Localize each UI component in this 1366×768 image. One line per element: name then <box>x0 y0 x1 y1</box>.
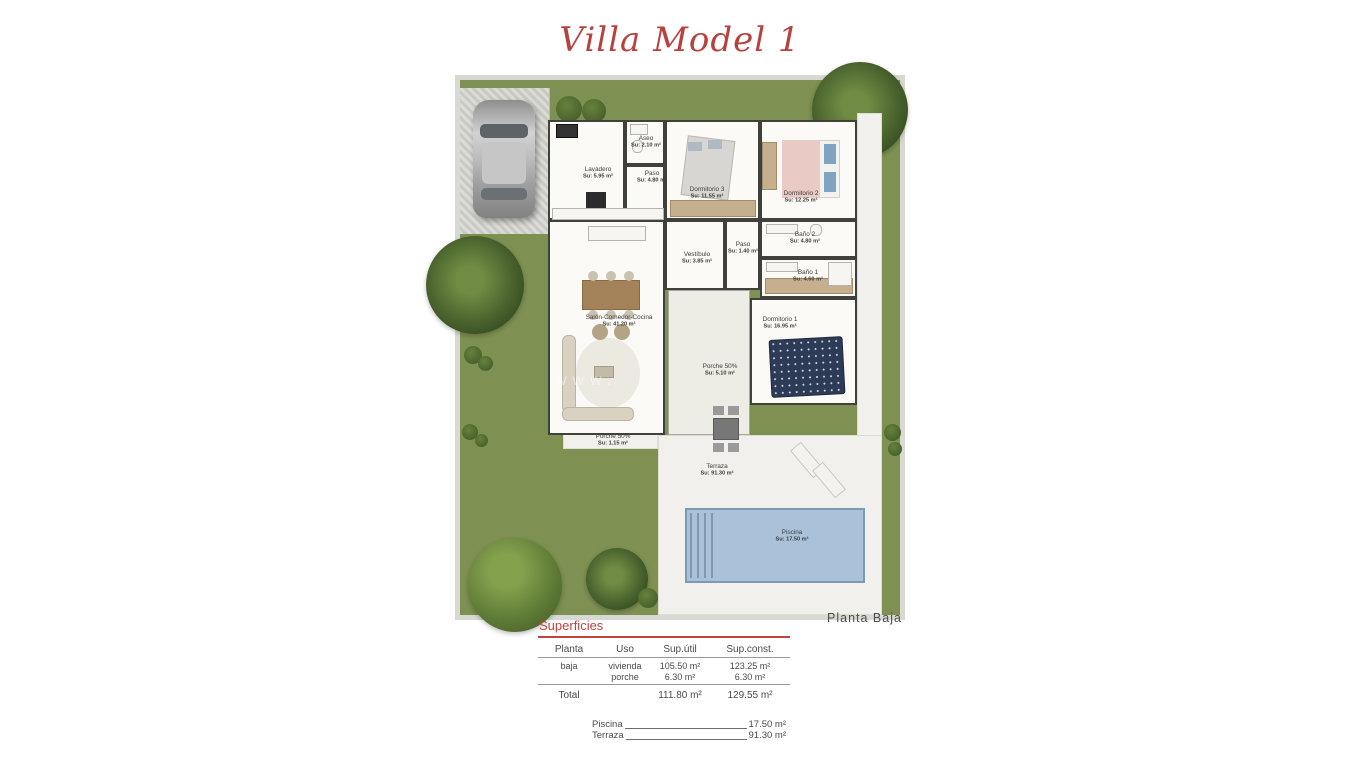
room-area: Su: 41.20 m² <box>586 322 653 329</box>
room-label: Porche 50%Su: 1.15 m² <box>596 433 631 448</box>
sofa <box>562 407 634 421</box>
shower <box>828 262 852 286</box>
bush <box>638 588 658 608</box>
total-label: Total <box>538 690 600 701</box>
col-planta: Planta <box>538 644 600 655</box>
patio-table <box>713 418 739 440</box>
bush <box>475 434 488 447</box>
cell-uso: porche <box>600 672 650 682</box>
room-area: Su: 4.60 m² <box>793 277 823 284</box>
stove <box>586 192 606 208</box>
total-util: 111.80 m² <box>650 690 710 701</box>
room-label: LavaderoSu: 5.95 m² <box>583 166 613 181</box>
superficies-heading: Superficies <box>539 618 603 633</box>
room-name: Vestíbulo <box>682 251 712 259</box>
room-name: Baño 1 <box>793 269 823 277</box>
extra-row-terraza: Terraza 91.30 m² <box>592 730 786 741</box>
pillow <box>708 140 722 149</box>
room-name: Terraza <box>701 463 734 471</box>
table-row: baja vivienda 105.50 m² 123.25 m² <box>538 660 790 671</box>
room-area: Su: 17.50 m² <box>776 537 809 544</box>
watermark: www. <box>555 372 875 390</box>
bush <box>478 356 493 371</box>
wardrobe <box>762 142 777 190</box>
room-area: Su: 16.95 m² <box>763 324 798 331</box>
room-label: PasoSu: 4.80 m² <box>637 170 667 185</box>
room-area: Su: 91.30 m² <box>701 471 734 478</box>
swimming-pool <box>685 508 865 583</box>
patio-chair <box>728 406 739 415</box>
car-top-view <box>473 100 535 218</box>
room-name: Porche 50% <box>703 363 738 371</box>
room-area: Su: 4.80 m² <box>790 239 820 246</box>
kitchen-counter <box>552 208 664 220</box>
site-plan: LavaderoSu: 5.95 m² AseoSu: 2.10 m² Paso… <box>455 75 905 620</box>
room-label: AseoSu: 2.10 m² <box>631 135 661 150</box>
palm-tree <box>426 236 524 334</box>
room-label: Baño 2Su: 4.80 m² <box>790 231 820 246</box>
room-name: Dormitorio 3 <box>690 186 725 194</box>
bush <box>888 442 902 456</box>
extra-label: Piscina <box>592 719 623 730</box>
washer <box>556 124 578 138</box>
room-area: Su: 11.55 m² <box>690 194 725 201</box>
cell-planta: baja <box>538 661 600 671</box>
room-name: Piscina <box>776 529 809 537</box>
room-area: Su: 4.80 m² <box>637 178 667 185</box>
extra-value: 91.30 m² <box>749 730 787 741</box>
room-area: Su: 1.40 m² <box>728 249 758 256</box>
pillow <box>824 144 836 164</box>
patio-chair <box>728 443 739 452</box>
table-total-row: Total 111.80 m² 129.55 m² <box>538 687 790 701</box>
cell-const: 123.25 m² <box>710 661 790 671</box>
room-label: Salón-Comedor-CocinaSu: 41.20 m² <box>586 314 653 329</box>
room-name: Salón-Comedor-Cocina <box>586 314 653 322</box>
room-area: Su: 3.85 m² <box>682 259 712 266</box>
chair <box>624 271 634 281</box>
total-const: 129.55 m² <box>710 690 790 701</box>
room-label: VestíbuloSu: 3.85 m² <box>682 251 712 266</box>
room-name: Paso <box>637 170 667 178</box>
extras-list: Piscina 17.50 m² Terraza 91.30 m² <box>592 719 786 741</box>
col-sup-const: Sup.const. <box>710 644 790 655</box>
extra-value: 17.50 m² <box>749 719 787 730</box>
room-area: Su: 5.95 m² <box>583 174 613 181</box>
extra-row-piscina: Piscina 17.50 m² <box>592 719 786 730</box>
room-name: Lavadero <box>583 166 613 174</box>
pillow <box>824 172 836 192</box>
cell-uso: vivienda <box>600 661 650 671</box>
dotted-fill <box>625 728 747 729</box>
bush <box>884 424 901 441</box>
room-label: Dormitorio 2Su: 12.25 m² <box>784 190 819 205</box>
extra-label: Terraza <box>592 730 624 741</box>
room-label: Baño 1Su: 4.60 m² <box>793 269 823 284</box>
red-divider <box>538 636 790 638</box>
kitchen-island <box>588 226 646 241</box>
room-name: Porche 50% <box>596 433 631 441</box>
chair <box>606 271 616 281</box>
room-name: Aseo <box>631 135 661 143</box>
car-windshield <box>480 124 528 138</box>
car-rear-window <box>481 188 527 200</box>
cell-util: 6.30 m² <box>650 672 710 682</box>
pool-steps <box>690 513 714 578</box>
room-name: Paso <box>728 241 758 249</box>
room-name: Dormitorio 1 <box>763 316 798 324</box>
table-divider <box>538 684 790 685</box>
pillow <box>688 142 702 151</box>
dining-table <box>582 280 640 310</box>
room-area: Su: 1.15 m² <box>596 441 631 448</box>
col-sup-util: Sup.útil <box>650 644 710 655</box>
patio-chair <box>713 406 724 415</box>
driveway <box>460 88 550 234</box>
cell-const: 6.30 m² <box>710 672 790 682</box>
superficies-table: Planta Uso Sup.útil Sup.const. baja vivi… <box>538 641 790 701</box>
room-area: Su: 12.25 m² <box>784 198 819 205</box>
table-row: porche 6.30 m² 6.30 m² <box>538 671 790 682</box>
room-label: PiscinaSu: 17.50 m² <box>776 529 809 544</box>
dotted-fill <box>626 739 747 740</box>
bush <box>556 96 582 122</box>
room-area: Su: 2.10 m² <box>631 143 661 150</box>
table-header-row: Planta Uso Sup.útil Sup.const. <box>538 641 790 655</box>
wardrobe <box>670 200 756 217</box>
chair <box>588 271 598 281</box>
room-label: Dormitorio 3Su: 11.55 m² <box>690 186 725 201</box>
room-name: Baño 2 <box>790 231 820 239</box>
page-title: Villa Model 1 <box>455 20 905 60</box>
sink <box>630 124 648 135</box>
cell-util: 105.50 m² <box>650 661 710 671</box>
room-label: Dormitorio 1Su: 16.95 m² <box>763 316 798 331</box>
room-label: PasoSu: 1.40 m² <box>728 241 758 256</box>
room-label: TerrazaSu: 91.30 m² <box>701 463 734 478</box>
patio-chair <box>713 443 724 452</box>
room-name: Dormitorio 2 <box>784 190 819 198</box>
car-roof <box>482 142 526 184</box>
plan-caption: Planta Baja <box>827 611 902 625</box>
col-uso: Uso <box>600 644 650 655</box>
table-divider <box>538 657 790 658</box>
